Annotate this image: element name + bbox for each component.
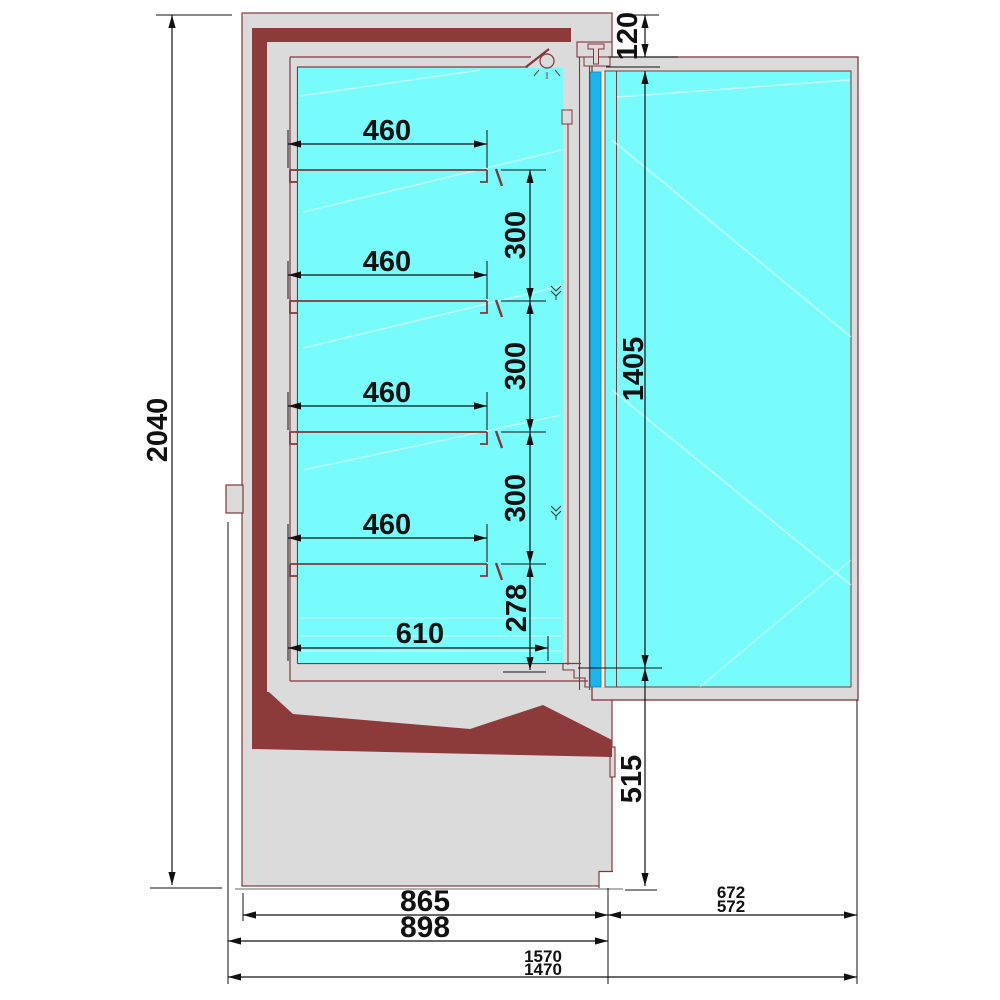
dim-label-open-depth-b: 1470	[524, 960, 562, 979]
dim-canopy-height: 120	[608, 12, 678, 60]
dim-open-total-depth: 1570 1470	[228, 947, 857, 979]
dim-label-overall-height: 2040	[142, 398, 174, 463]
dim-label-shelf-depth-4: 460	[363, 509, 411, 541]
dim-label-shelf-depth-1: 460	[363, 115, 411, 147]
dim-label-door-width-b: 572	[717, 897, 745, 916]
dim-label-bottom-shelf-depth: 610	[396, 618, 444, 650]
duct-top-bracket	[562, 110, 572, 124]
dim-label-base-height: 515	[616, 755, 648, 803]
drawing-canvas: 2040 120 1405 515 460 460 460	[0, 0, 1000, 1000]
dim-overall-height: 2040	[142, 15, 232, 888]
dim-label-shelf-gap-3: 300	[500, 474, 532, 522]
insulation-left-wall	[252, 28, 267, 697]
dim-label-canopy-height: 120	[612, 12, 644, 60]
dim-label-shelf-depth-3: 460	[363, 377, 411, 409]
dim-label-shelf-depth-2: 460	[363, 246, 411, 278]
cabinet-section-drawing: 2040 120 1405 515 460 460 460	[0, 0, 1000, 1000]
glass-highlight	[602, 72, 605, 687]
dim-label-door-glass-height: 1405	[618, 337, 650, 402]
insulation-top-wall	[252, 28, 571, 42]
lamp-icon	[540, 54, 554, 68]
front-bumper-tab	[226, 485, 243, 513]
dim-label-bottom-gap: 278	[501, 584, 533, 632]
dim-label-shelf-gap-2: 300	[500, 342, 532, 390]
glass-door-closed-section	[591, 72, 605, 687]
dim-base-height: 515	[616, 668, 657, 890]
dim-label-shelf-gap-1: 300	[500, 211, 532, 259]
dim-label-overall-depth: 898	[400, 911, 450, 944]
base-corner-notch	[599, 872, 614, 889]
door-glass-edge-section	[591, 72, 602, 687]
